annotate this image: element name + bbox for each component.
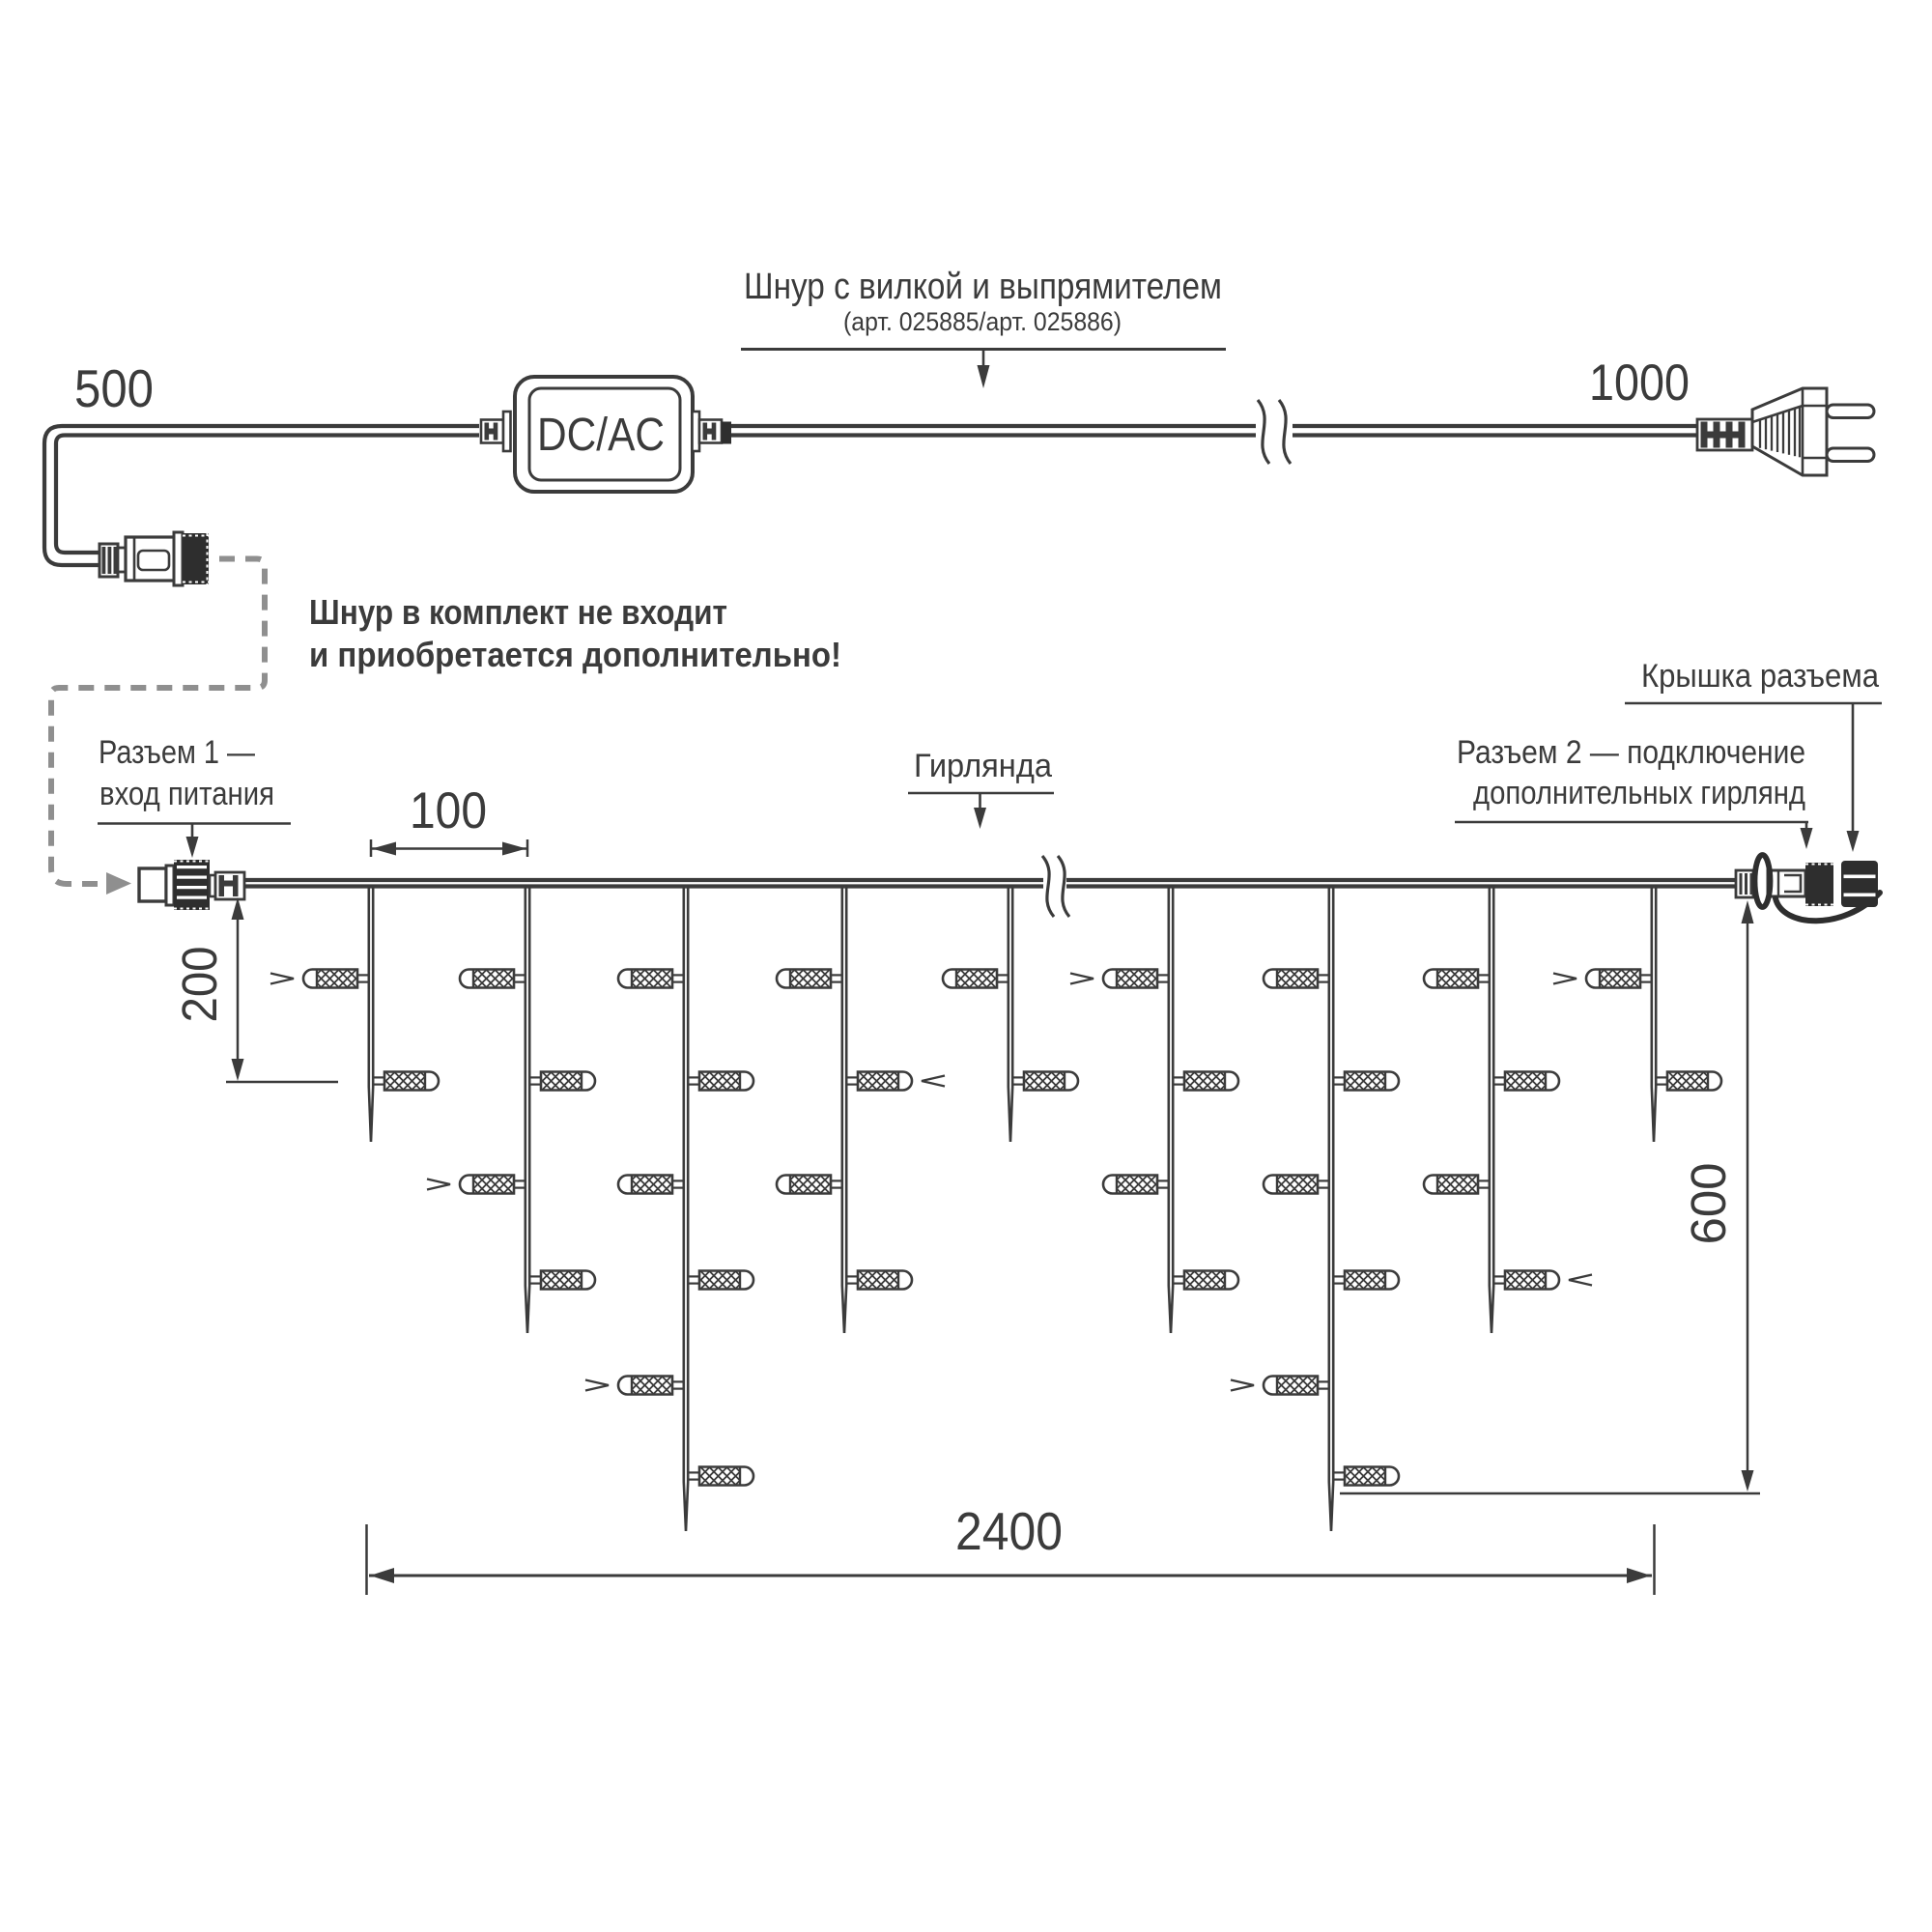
svg-text:(арт. 025885/арт. 025886): (арт. 025885/арт. 025886) <box>843 307 1122 336</box>
svg-text:вход питания: вход питания <box>99 776 274 812</box>
svg-text:500: 500 <box>74 358 154 418</box>
svg-text:Шнур с вилкой и выпрямителем: Шнур с вилкой и выпрямителем <box>744 267 1222 307</box>
svg-text:Крышка разъема: Крышка разъема <box>1641 658 1879 695</box>
svg-text:Гирлянда: Гирлянда <box>914 748 1052 784</box>
svg-text:1000: 1000 <box>1589 355 1690 412</box>
svg-text:DC/AC: DC/AC <box>537 410 665 461</box>
svg-text:200: 200 <box>172 947 227 1023</box>
svg-text:Разъем 2 — подключение: Разъем 2 — подключение <box>1457 734 1805 771</box>
svg-text:100: 100 <box>410 782 487 839</box>
svg-text:600: 600 <box>1681 1163 1736 1245</box>
svg-text:дополнительных гирлянд: дополнительных гирлянд <box>1473 775 1805 811</box>
svg-text:и приобретается дополнительно!: и приобретается дополнительно! <box>309 635 841 674</box>
svg-text:2400: 2400 <box>955 1501 1063 1561</box>
svg-text:Разъем 1 —: Разъем 1 — <box>99 734 255 771</box>
svg-text:Шнур в комплект не входит: Шнур в комплект не входит <box>309 592 727 632</box>
